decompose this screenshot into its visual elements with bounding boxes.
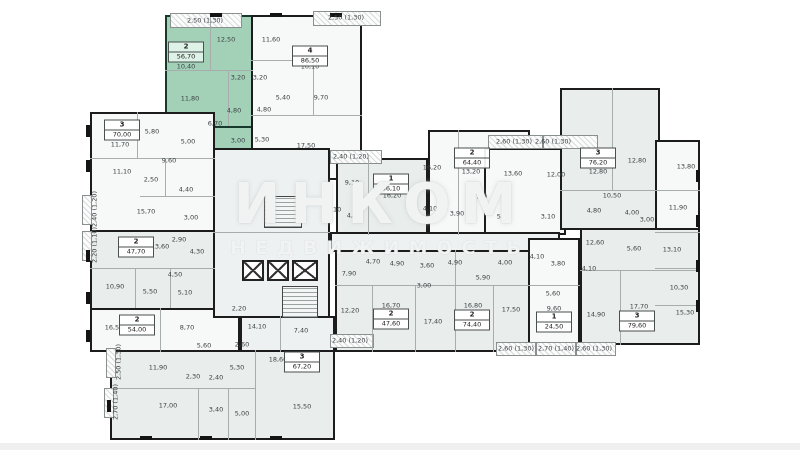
room-area-label: 8,70 <box>180 325 194 332</box>
wall-divider <box>368 158 369 235</box>
room-area-label: 5,80 <box>145 129 159 136</box>
room-area-label: 14,90 <box>587 312 606 319</box>
apartment-rooms-count: 2 <box>374 310 408 320</box>
balcony-area-label: 2,60 (1,30) <box>496 139 532 146</box>
room-area-label: 12,00 <box>547 172 566 179</box>
room-area-label: 15,50 <box>293 404 312 411</box>
balcony-area-label: 2,60 (1,30) <box>498 346 534 353</box>
apartment-total-area: 47,60 <box>374 320 408 329</box>
wall-divider <box>135 268 136 308</box>
room-area-label: 2,60 <box>235 342 249 349</box>
room-area-label: 15,30 <box>676 310 695 317</box>
staircase <box>282 286 318 318</box>
room-area-label: 5,30 <box>255 137 269 144</box>
room-area-label: 3,90 <box>450 211 464 218</box>
wall-divider <box>458 130 459 235</box>
balcony-area-label: 2,70 (1,40) <box>113 384 120 420</box>
room-area-label: 13,80 <box>677 164 696 171</box>
wall-divider <box>655 232 700 233</box>
wall-divider <box>228 388 229 440</box>
apartment-rooms-count: 2 <box>455 311 489 321</box>
wall-segment <box>86 250 90 262</box>
room-area-label: 3,00 <box>417 283 431 290</box>
balcony-area-label: 2,60 (1,30) <box>576 346 612 353</box>
apartment-total-area: 86,50 <box>293 57 327 66</box>
apartment-rooms-count: 3 <box>620 312 654 322</box>
apartment-total-area: 79,60 <box>620 322 654 331</box>
staircase <box>264 196 302 228</box>
apartment-label-2-rooms-56,70[interactable]: 256,70 <box>168 42 204 63</box>
apartment-rooms-count: 3 <box>105 121 139 131</box>
room-area-label: 14,10 <box>248 324 267 331</box>
room-area-label: 3,20 <box>231 75 245 82</box>
room-area-label: 5,50 <box>143 289 157 296</box>
balcony-area-label: 2,50 (1,30) <box>116 344 123 380</box>
wall-divider <box>528 285 580 286</box>
wall-segment <box>200 436 212 440</box>
room-area-label: 5,00 <box>181 139 195 146</box>
room-area-label: 3,60 <box>420 263 434 270</box>
room-area-label: 11,90 <box>149 365 168 372</box>
balcony-area-label: 2,40 (1,20) <box>332 338 368 345</box>
apartment-total-area: 54,00 <box>120 326 154 335</box>
room-area-label: 5,90 <box>476 275 490 282</box>
wall-divider <box>255 350 256 440</box>
room-area-label: 4,10 <box>530 254 544 261</box>
apartment-label-1-rooms-24,50[interactable]: 124,50 <box>536 312 572 333</box>
wall-segment <box>140 436 152 440</box>
room-area-label: 11,80 <box>181 96 200 103</box>
room-area-label: 11,60 <box>262 37 281 44</box>
apartment-rooms-count: 1 <box>374 175 408 185</box>
wall-segment <box>86 125 90 137</box>
room-area-label: 11,90 <box>669 205 688 212</box>
room-area-label: 16,20 <box>423 165 442 172</box>
balcony-area-label: 2,50 (1,30) <box>187 18 223 25</box>
wall-divider <box>90 158 215 159</box>
room-area-label: 4,00 <box>498 260 512 267</box>
room-area-label: 15,70 <box>137 209 156 216</box>
wall-divider <box>612 88 613 190</box>
wall-segment <box>696 260 700 272</box>
room-area-label: 13,20 <box>462 169 481 176</box>
room-area-label: 2,50 <box>144 177 158 184</box>
elevator-shaft <box>267 260 289 281</box>
corridor-block <box>330 232 560 252</box>
apartment-rooms-count: 2 <box>120 316 154 326</box>
room-area-label: 5,10 <box>178 290 192 297</box>
wall-segment <box>86 292 90 304</box>
wall-segment <box>696 215 700 227</box>
bottom-band <box>0 443 800 450</box>
apartment-total-area: 64,40 <box>455 159 489 168</box>
wall-divider <box>415 285 416 352</box>
room-area-label: 17,70 <box>630 304 649 311</box>
apartment-rooms-count: 4 <box>293 47 327 57</box>
room-area-label: 4,90 <box>390 261 404 268</box>
room-area-label: 5,00 <box>235 411 249 418</box>
apartment-rooms-count: 2 <box>119 238 153 248</box>
wall-segment <box>696 300 700 312</box>
room-area-label: 5,60 <box>546 291 560 298</box>
room-area-label: 4,10 <box>423 206 437 213</box>
room-area-label: 5,10 <box>327 207 341 214</box>
room-area-label: 12,60 <box>586 240 605 247</box>
apartment-label-3-rooms-67,20[interactable]: 367,20 <box>284 352 320 373</box>
apartment-rooms-count: 3 <box>285 353 319 363</box>
room-area-label: 4,50 <box>168 272 182 279</box>
room-area-label: 17,50 <box>297 143 316 150</box>
wall-divider <box>110 388 255 389</box>
room-area-label: 9,60 <box>162 158 176 165</box>
apartment-rooms-count: 2 <box>455 149 489 159</box>
room-area-label: 7,90 <box>342 271 356 278</box>
apartment-total-area: 74,40 <box>455 321 489 330</box>
wall-segment <box>696 170 700 182</box>
wall-divider <box>280 316 281 352</box>
room-area-label: 12,20 <box>341 308 360 315</box>
apartment-total-area: 47,70 <box>119 248 153 257</box>
wall-divider <box>655 268 700 269</box>
room-area-label: 3,10 <box>541 214 555 221</box>
room-area-label: 9,10 <box>345 180 359 187</box>
hall-block <box>240 316 335 352</box>
apartment-total-area: 36,10 <box>374 185 408 194</box>
apartment-total-area: 76,20 <box>581 159 615 168</box>
wall-segment <box>86 160 90 172</box>
room-area-label: 3,00 <box>231 138 245 145</box>
balcony-area-label: 2,60 (1,30) <box>535 139 571 146</box>
room-area-label: 4,50 <box>347 213 361 220</box>
apartment-label-2-rooms-64,40[interactable]: 264,40 <box>454 148 490 169</box>
wall-segment <box>270 13 282 17</box>
room-area-label: 3,80 <box>551 261 565 268</box>
room-area-label: 3,00 <box>184 215 198 222</box>
room-area-label: 5,80 <box>497 214 511 221</box>
apartment-label-1-rooms-36,10[interactable]: 136,10 <box>373 174 409 195</box>
room-area-label: 3,40 <box>209 407 223 414</box>
room-area-label: 4,40 <box>179 187 193 194</box>
wall-divider <box>213 232 330 233</box>
room-area-label: 12,80 <box>628 158 647 165</box>
room-area-label: 3,00 <box>640 217 654 224</box>
balcony-area-label: 2,70 (1,40) <box>538 346 574 353</box>
room-area-label: 6,70 <box>208 121 222 128</box>
room-area-label: 4,80 <box>227 108 241 115</box>
room-area-label: 9,70 <box>314 95 328 102</box>
room-area-label: 3,20 <box>253 75 267 82</box>
room-area-label: 12,80 <box>589 169 608 176</box>
room-area-label: 17,50 <box>502 307 521 314</box>
room-area-label: 7,20 <box>473 194 487 201</box>
wall-divider <box>580 270 700 271</box>
room-area-label: 13,60 <box>504 171 523 178</box>
balcony-area-label: 2,20 (1,10) <box>92 227 99 263</box>
wall-segment <box>270 436 282 440</box>
wall-divider <box>493 285 494 352</box>
balcony-area-label: 2,50 (1,30) <box>328 15 364 22</box>
wall-divider <box>90 268 215 269</box>
room-area-label: 4,70 <box>366 259 380 266</box>
room-area-label: 11,10 <box>113 169 132 176</box>
room-area-label: 4,90 <box>448 260 462 267</box>
room-area-label: 4,30 <box>190 249 204 256</box>
wall-divider <box>198 388 199 440</box>
elevator-shaft <box>242 260 264 281</box>
apartment-label-2-rooms-47,70[interactable]: 247,70 <box>118 237 154 258</box>
balcony-area-label: 2,40 (1,20) <box>92 191 99 227</box>
room-area-label: 17,40 <box>424 319 443 326</box>
room-area-label: 5,40 <box>276 95 290 102</box>
room-area-label: 4,80 <box>257 107 271 114</box>
apartment-label-3-rooms-76,20[interactable]: 376,20 <box>580 148 616 169</box>
room-area-label: 12,50 <box>217 37 236 44</box>
apartment-total-area: 56,70 <box>169 53 203 62</box>
room-area-label: 2,30 <box>186 374 200 381</box>
room-area-label: 13,10 <box>663 247 682 254</box>
room-area-label: 17,00 <box>159 403 178 410</box>
room-area-label: 11,70 <box>111 142 130 149</box>
room-area-label: 5,30 <box>230 365 244 372</box>
wall-divider <box>655 190 700 191</box>
room-area-label: 2,40 <box>209 375 223 382</box>
apartment-label-3-rooms-70,00[interactable]: 370,00 <box>104 120 140 141</box>
room-area-label: 10,40 <box>177 64 196 71</box>
apartment-total-area: 24,50 <box>537 323 571 332</box>
room-area-label: 2,20 <box>232 306 246 313</box>
wall-divider <box>228 70 229 126</box>
apartment-label-4-rooms-86,50[interactable]: 486,50 <box>292 46 328 67</box>
apartment-rooms-count: 2 <box>169 43 203 53</box>
room-area-label: 16,80 <box>464 303 483 310</box>
room-area-label: 2,90 <box>172 237 186 244</box>
room-area-label: 4,00 <box>625 210 639 217</box>
room-area-label: 7,40 <box>294 328 308 335</box>
balcony-area-label: 2,40 (1,20) <box>333 154 369 161</box>
room-area-label: 10,50 <box>603 193 622 200</box>
elevator-shaft <box>292 260 318 281</box>
apartment-label-2-rooms-47,60[interactable]: 247,60 <box>373 309 409 330</box>
wall-divider <box>620 270 621 345</box>
room-area-label: 10,30 <box>670 285 689 292</box>
right-top-rooms-block <box>484 148 566 235</box>
apartment-rooms-count: 3 <box>581 149 615 159</box>
apartment-label-2-rooms-74,40[interactable]: 274,40 <box>454 310 490 331</box>
room-area-label: 4,80 <box>587 208 601 215</box>
wall-divider <box>251 115 362 116</box>
apartment-label-3-rooms-79,60[interactable]: 379,60 <box>619 311 655 332</box>
floor-plan: ИНКОМ НЕДВИЖИМОСТЬ 12,5010,4011,803,204,… <box>0 0 800 450</box>
wall-segment <box>107 400 111 412</box>
wall-divider <box>140 196 215 197</box>
apartment-rooms-count: 1 <box>537 313 571 323</box>
wall-divider <box>335 285 560 286</box>
room-area-label: 10,90 <box>106 284 125 291</box>
apartment-total-area: 70,00 <box>105 131 139 140</box>
wall-segment <box>86 330 90 342</box>
room-area-label: 4,10 <box>582 266 596 273</box>
room-area-label: 5,60 <box>197 343 211 350</box>
apartment-label-2-rooms-54,00[interactable]: 254,00 <box>119 315 155 336</box>
wall-divider <box>655 305 700 306</box>
apartment-total-area: 67,20 <box>285 363 319 372</box>
wall-divider <box>160 308 161 352</box>
room-area-label: 5,60 <box>627 246 641 253</box>
